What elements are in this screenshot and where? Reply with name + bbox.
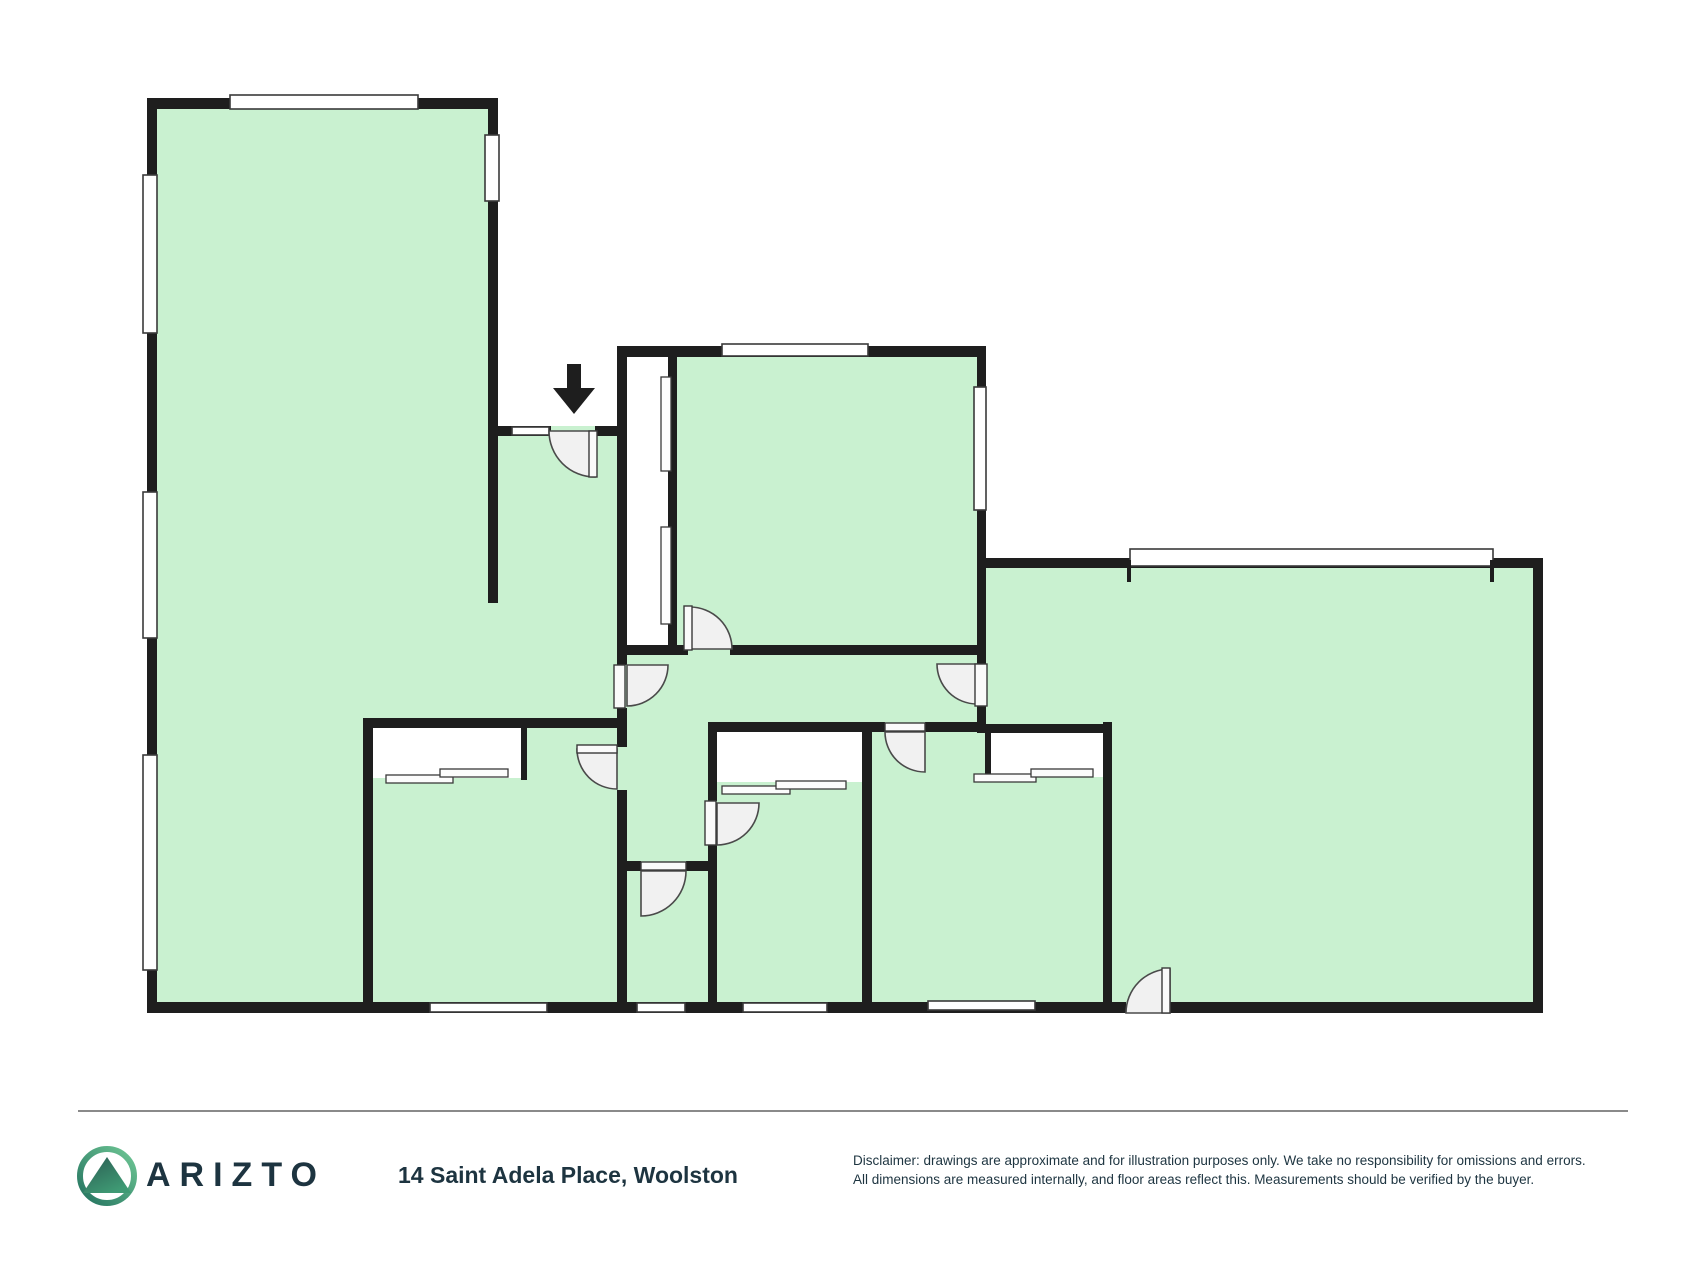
window	[512, 427, 549, 435]
wardrobe-sliding-door	[776, 781, 846, 789]
window-tick	[1490, 560, 1494, 582]
window	[143, 175, 157, 333]
wall-bedroom3-right	[1103, 722, 1112, 1013]
window	[143, 492, 157, 638]
room-lounge	[152, 103, 492, 608]
disclaimer-line-1: Disclaimer: drawings are approximate and…	[853, 1152, 1643, 1171]
wardrobe-end-wall	[985, 733, 991, 777]
window	[230, 95, 418, 109]
floor-plan-page: ARIZTO 14 Saint Adela Place, Woolston Di…	[0, 0, 1707, 1280]
wall-bedroom1-left	[363, 718, 373, 1013]
floor-plan-drawing	[0, 0, 1707, 1280]
window	[637, 1003, 685, 1012]
wall-bottom	[147, 1002, 1543, 1013]
property-address: 14 Saint Adela Place, Woolston	[398, 1162, 738, 1189]
closet-sliding-door	[661, 527, 671, 624]
wardrobe-top-wall	[985, 724, 1103, 733]
wardrobe-bedroom2	[717, 732, 862, 782]
disclaimer-text: Disclaimer: drawings are approximate and…	[853, 1152, 1643, 1189]
wardrobe-sliding-door	[440, 769, 508, 777]
window	[430, 1003, 547, 1012]
wall-hallway-north	[617, 645, 985, 655]
entry-arrow-icon	[553, 364, 595, 414]
disclaimer-line-2: All dimensions are measured internally, …	[853, 1171, 1643, 1190]
wall-right	[1533, 558, 1543, 1013]
window	[143, 755, 157, 970]
wardrobe-sliding-door	[1031, 769, 1093, 777]
room-living-area	[152, 598, 627, 1008]
wardrobe-end-wall	[521, 728, 527, 780]
wardrobe-sliding-door	[974, 774, 1036, 782]
window	[485, 135, 499, 201]
wall-bedroom1-top	[363, 718, 627, 728]
window	[1130, 549, 1493, 566]
footer-divider	[78, 1110, 1628, 1112]
wall-bedroom2-right	[862, 722, 872, 1013]
room-family-living	[980, 560, 1538, 1008]
arizto-mountain-logo-icon	[80, 1149, 134, 1203]
brand-wordmark: ARIZTO	[146, 1156, 326, 1195]
closet-sliding-door	[661, 377, 671, 471]
window-tick	[1127, 560, 1131, 582]
window	[722, 344, 868, 356]
window	[743, 1003, 827, 1012]
wall-bedrooms-north	[708, 722, 985, 732]
window	[928, 1001, 1035, 1010]
window	[974, 387, 986, 510]
